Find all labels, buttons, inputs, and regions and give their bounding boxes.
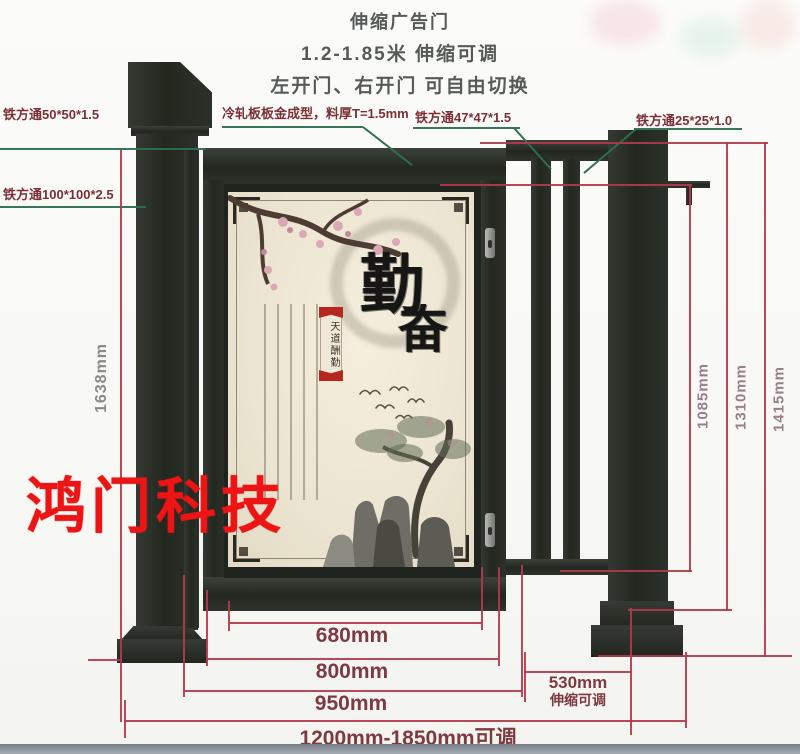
dim-line-1638 bbox=[120, 150, 122, 722]
leader-tube25 bbox=[634, 128, 742, 130]
dim-text-1415: 1415mm bbox=[771, 366, 788, 432]
gate-diagram: 伸缩广告门 1.2-1.85米 伸缩可调 左开门、右开门 可自由切换 bbox=[0, 0, 800, 754]
right-pedestal-top bbox=[600, 601, 674, 627]
dim-text-530-note: 伸缩可调 bbox=[550, 690, 606, 710]
dim-tick-1638-bottom bbox=[88, 659, 122, 661]
title-line-1: 伸缩广告门 bbox=[0, 8, 800, 34]
dim-connector-ground bbox=[598, 655, 792, 657]
callout-tube50: 铁方通50*50*1.5 bbox=[3, 104, 99, 123]
leader-cold-rolled bbox=[222, 126, 363, 128]
right-pedestal-base bbox=[591, 625, 683, 657]
bottom-edge-strip bbox=[0, 744, 800, 754]
ext-680-right bbox=[481, 567, 483, 630]
dim-connector-top bbox=[480, 142, 768, 144]
banner-top-cap bbox=[319, 307, 343, 318]
ext-680-left bbox=[228, 601, 230, 631]
sliding-bar-1 bbox=[531, 158, 551, 573]
dim-line-1415 bbox=[764, 142, 766, 657]
dim-text-1310: 1310mm bbox=[733, 364, 750, 430]
banner-text: 天道酬勤 bbox=[326, 321, 341, 369]
ext-total-right bbox=[685, 652, 687, 728]
callout-tube47: 铁方通47*47*1.5 bbox=[415, 107, 511, 126]
dim-text-1638: 1638mm bbox=[93, 343, 111, 413]
door-back-strip bbox=[184, 150, 199, 628]
right-post bbox=[608, 130, 668, 605]
corner-ornament bbox=[442, 197, 469, 224]
ext-950-right bbox=[521, 565, 523, 697]
leader-tube100 bbox=[0, 206, 146, 208]
dim-line-1310 bbox=[726, 142, 728, 611]
callout-tube25: 铁方通25*25*1.0 bbox=[636, 110, 732, 129]
callout-tube100: 铁方通100*100*2.5 bbox=[3, 184, 114, 203]
banner-bottom-cap bbox=[319, 370, 343, 381]
dim-connector-wing-bottom bbox=[560, 570, 692, 572]
watermark-text: 鸿门科技 bbox=[26, 458, 286, 545]
dim-line-1085 bbox=[689, 185, 691, 572]
ext-800-right bbox=[498, 567, 500, 666]
red-banner: 天道酬勤 bbox=[320, 308, 342, 380]
door-lock-upper bbox=[485, 228, 495, 258]
door-bottom-rail bbox=[203, 577, 506, 611]
dim-connector-wing-top bbox=[440, 184, 692, 186]
left-pedestal-base bbox=[117, 639, 207, 663]
dim-text-1085: 1085mm bbox=[695, 363, 712, 429]
dim-text-950: 950mm bbox=[315, 692, 387, 716]
leader-tube50 bbox=[0, 148, 206, 150]
dim-text-800: 800mm bbox=[316, 660, 388, 684]
ext-950-left bbox=[183, 575, 185, 697]
ext-total-left bbox=[124, 700, 126, 738]
title-line-3: 左开门、右开门 可自由切换 bbox=[0, 71, 800, 98]
ext-800-left bbox=[206, 590, 208, 666]
dim-connector-post-bottom bbox=[628, 609, 732, 611]
calligraphy-fen: 奋 bbox=[398, 290, 448, 362]
leader-tube47 bbox=[413, 127, 520, 129]
dim-text-680: 680mm bbox=[316, 624, 388, 648]
ext-530-left bbox=[524, 652, 526, 702]
door-top-beam bbox=[203, 148, 506, 185]
callout-cold-rolled: 冷轧板板金成型，料厚T=1.5mm bbox=[222, 103, 409, 122]
rock-pine-illustration bbox=[321, 405, 473, 567]
sliding-bar-2 bbox=[563, 158, 580, 573]
door-lock-lower bbox=[485, 513, 495, 547]
title-line-2: 1.2-1.85米 伸缩可调 bbox=[0, 39, 800, 66]
